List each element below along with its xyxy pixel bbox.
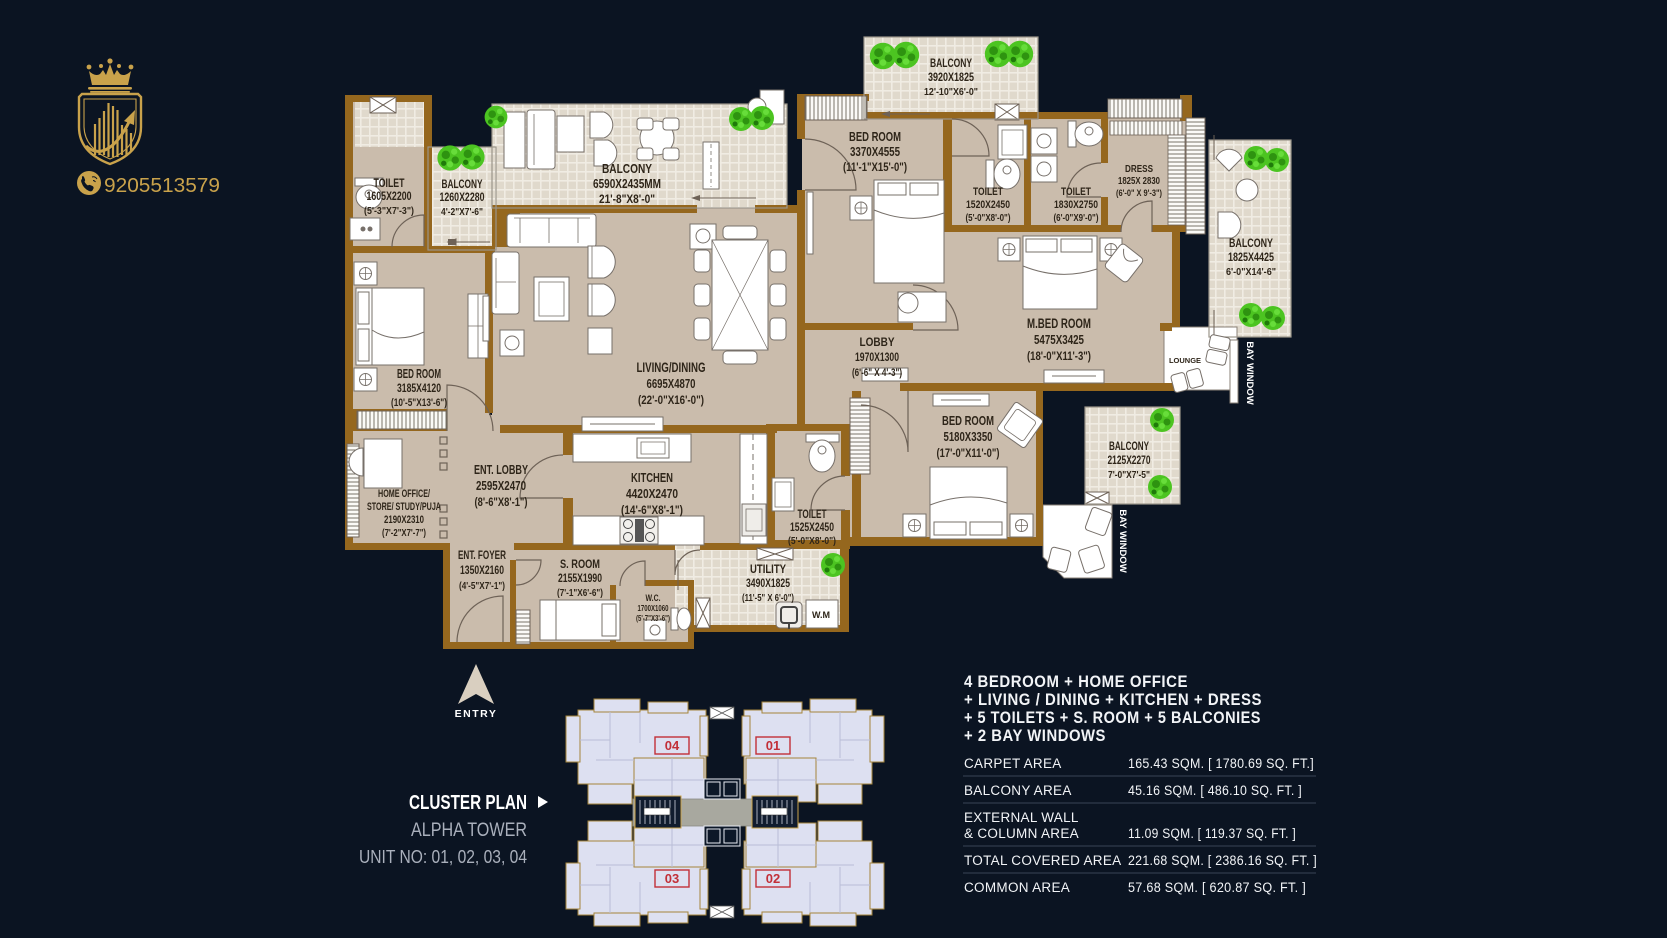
svg-text:DRESS: DRESS: [1125, 164, 1153, 175]
svg-text:ENT. FOYER: ENT. FOYER: [458, 550, 506, 562]
svg-text:1520X2450: 1520X2450: [966, 199, 1010, 211]
svg-text:ALPHA TOWER: ALPHA TOWER: [411, 820, 527, 841]
svg-text:04: 04: [665, 738, 680, 753]
svg-text:221.68 SQM. [ 2386.16 SQ. FT.: 221.68 SQM. [ 2386.16 SQ. FT. ]: [1128, 853, 1317, 868]
svg-text:(11'-1"X15'-0"): (11'-1"X15'-0"): [843, 162, 907, 174]
svg-text:1970X1300: 1970X1300: [855, 350, 899, 364]
svg-text:1350X2160: 1350X2160: [460, 565, 504, 577]
svg-text:HOME OFFICE/: HOME OFFICE/: [378, 488, 430, 500]
svg-text:03: 03: [665, 871, 679, 886]
svg-text:STORE/ STUDY/PUJA: STORE/ STUDY/PUJA: [367, 501, 441, 513]
svg-text:BED ROOM: BED ROOM: [942, 413, 994, 428]
svg-text:57.68 SQM. [ 620.87 SQ. FT. ]: 57.68 SQM. [ 620.87 SQ. FT. ]: [1128, 880, 1306, 895]
svg-text:9205513579: 9205513579: [104, 175, 220, 197]
svg-text:3490X1825: 3490X1825: [746, 578, 790, 590]
svg-text:LOUNGE: LOUNGE: [1169, 356, 1201, 365]
svg-text:+ 5 TOILETS + S. ROOM + 5 BALC: + 5 TOILETS + S. ROOM + 5 BALCONIES: [964, 709, 1261, 727]
svg-text:(5'-0"X8'-0"): (5'-0"X8'-0"): [788, 535, 836, 547]
svg-text:6695X4870: 6695X4870: [647, 376, 696, 391]
svg-text:TOILET: TOILET: [798, 509, 827, 521]
svg-text:TOTAL COVERED AREA: TOTAL COVERED AREA: [964, 853, 1121, 868]
svg-text:+ LIVING / DINING + KITCHEN +: + LIVING / DINING + KITCHEN + DRESS: [964, 691, 1262, 709]
svg-text:3920X1825: 3920X1825: [928, 72, 974, 84]
svg-text:(6'-0"X9'-0"): (6'-0"X9'-0"): [1054, 213, 1099, 224]
svg-text:(6'-0" X 9'-3"): (6'-0" X 9'-3"): [1116, 188, 1162, 198]
svg-text:(11'-5" X 6'-0"): (11'-5" X 6'-0"): [742, 592, 794, 604]
svg-text:1700X1060: 1700X1060: [638, 603, 669, 613]
svg-text:CARPET AREA: CARPET AREA: [964, 756, 1062, 771]
svg-text:(17'-0"X11'-0"): (17'-0"X11'-0"): [937, 446, 1000, 460]
svg-text:COMMON AREA: COMMON AREA: [964, 880, 1070, 895]
svg-text:2595X2470: 2595X2470: [476, 479, 526, 493]
svg-text:02: 02: [766, 871, 780, 886]
svg-text:TOILET: TOILET: [1061, 186, 1091, 198]
svg-text:BAY WINDOW: BAY WINDOW: [1244, 341, 1255, 404]
svg-text:45.16 SQM. [ 486.10 SQ. FT. ]: 45.16 SQM. [ 486.10 SQ. FT. ]: [1128, 783, 1302, 798]
svg-text:W.M: W.M: [812, 610, 830, 620]
svg-text:12'-10"X6'-0": 12'-10"X6'-0": [924, 86, 978, 98]
svg-text:165.43 SQM. [ 1780.69 SQ. FT.]: 165.43 SQM. [ 1780.69 SQ. FT.]: [1128, 756, 1314, 771]
svg-text:(14'-6"X8'-1"): (14'-6"X8'-1"): [621, 503, 683, 517]
svg-text:7'-0"X7'-5": 7'-0"X7'-5": [1108, 469, 1150, 481]
svg-text:BALCONY: BALCONY: [602, 162, 653, 176]
svg-text:UNIT NO: 01, 02, 03, 04: UNIT NO: 01, 02, 03, 04: [359, 847, 527, 867]
svg-text:BALCONY AREA: BALCONY AREA: [964, 783, 1072, 798]
svg-text:(7'-1"X6'-6"): (7'-1"X6'-6"): [557, 587, 603, 599]
svg-text:BALCONY: BALCONY: [930, 58, 972, 70]
svg-text:6590X2435MM: 6590X2435MM: [593, 177, 661, 191]
svg-text:6'-0"X14'-6": 6'-0"X14'-6": [1226, 266, 1276, 278]
svg-text:TOILET: TOILET: [973, 186, 1003, 198]
svg-text:KITCHEN: KITCHEN: [631, 470, 673, 485]
svg-text:(18'-0"X11'-3"): (18'-0"X11'-3"): [1027, 349, 1091, 363]
svg-text:BED ROOM: BED ROOM: [849, 130, 901, 144]
svg-text:(5'-7"X3'-6"): (5'-7"X3'-6"): [636, 614, 670, 623]
svg-text:4 BEDROOM + HOME OFFICE: 4 BEDROOM + HOME OFFICE: [964, 673, 1188, 691]
svg-text:3370X4555: 3370X4555: [850, 145, 900, 159]
svg-text:(8'-6"X8'-1"): (8'-6"X8'-1"): [475, 497, 528, 509]
svg-text:(10'-5"X13'-6"): (10'-5"X13'-6"): [391, 397, 447, 409]
svg-text:11.09 SQM. [ 119.37 SQ. FT. ]: 11.09 SQM. [ 119.37 SQ. FT. ]: [1128, 826, 1296, 841]
svg-text:4420X2470: 4420X2470: [626, 486, 678, 501]
svg-text:UTILITY: UTILITY: [750, 564, 786, 576]
svg-text:1605X2200: 1605X2200: [367, 191, 412, 203]
svg-text:1825X4425: 1825X4425: [1228, 252, 1274, 264]
svg-text:1260X2280: 1260X2280: [440, 192, 485, 204]
svg-text:M.BED ROOM: M.BED ROOM: [1027, 316, 1091, 331]
svg-text:21'-8"X8'-0": 21'-8"X8'-0": [599, 194, 655, 206]
svg-text:& COLUMN AREA: & COLUMN AREA: [964, 826, 1079, 841]
svg-text:ENT. LOBBY: ENT. LOBBY: [474, 463, 528, 477]
svg-text:2155X1990: 2155X1990: [558, 573, 602, 585]
svg-text:CLUSTER PLAN: CLUSTER PLAN: [409, 792, 527, 814]
svg-text:(22'-0"X16'-0"): (22'-0"X16'-0"): [638, 393, 704, 407]
svg-text:01: 01: [766, 738, 780, 753]
svg-text:4'-2"X7'-6": 4'-2"X7'-6": [441, 206, 483, 218]
svg-text:2190X2310: 2190X2310: [384, 514, 424, 526]
svg-text:(5'-3"X7'-3"): (5'-3"X7'-3"): [364, 205, 414, 217]
svg-text:EXTERNAL WALL: EXTERNAL WALL: [964, 810, 1079, 825]
svg-text:BAY WINDOW: BAY WINDOW: [1117, 509, 1128, 572]
svg-text:1525X2450: 1525X2450: [790, 522, 834, 534]
svg-text:BALCONY: BALCONY: [1229, 238, 1273, 250]
svg-text:ENTRY: ENTRY: [455, 708, 498, 720]
svg-text:W.C.: W.C.: [646, 593, 661, 603]
svg-text:3185X4120: 3185X4120: [397, 381, 441, 395]
svg-text:BALCONY: BALCONY: [1109, 441, 1149, 453]
svg-text:LOBBY: LOBBY: [860, 335, 895, 349]
svg-text:S. ROOM: S. ROOM: [560, 559, 600, 571]
svg-text:2125X2270: 2125X2270: [1108, 455, 1151, 467]
svg-text:5180X3350: 5180X3350: [944, 429, 993, 444]
svg-text:+ 2 BAY WINDOWS: + 2 BAY WINDOWS: [964, 727, 1106, 745]
svg-text:BALCONY: BALCONY: [442, 179, 483, 191]
svg-text:BED ROOM: BED ROOM: [397, 367, 441, 381]
svg-text:(4'-5"X7'-1"): (4'-5"X7'-1"): [459, 580, 505, 592]
svg-text:1830X2750: 1830X2750: [1054, 199, 1098, 211]
svg-text:LIVING/DINING: LIVING/DINING: [637, 360, 706, 375]
svg-text:(5'-0"X8'-0"): (5'-0"X8'-0"): [966, 213, 1011, 224]
svg-text:(7'-2"X7'-7"): (7'-2"X7'-7"): [382, 528, 426, 539]
svg-text:1825X 2830: 1825X 2830: [1118, 176, 1160, 187]
svg-text:5475X3425: 5475X3425: [1034, 332, 1084, 347]
svg-text:TOILET: TOILET: [374, 178, 405, 190]
svg-text:(6'-6" X 4'-3"): (6'-6" X 4'-3"): [852, 367, 902, 379]
